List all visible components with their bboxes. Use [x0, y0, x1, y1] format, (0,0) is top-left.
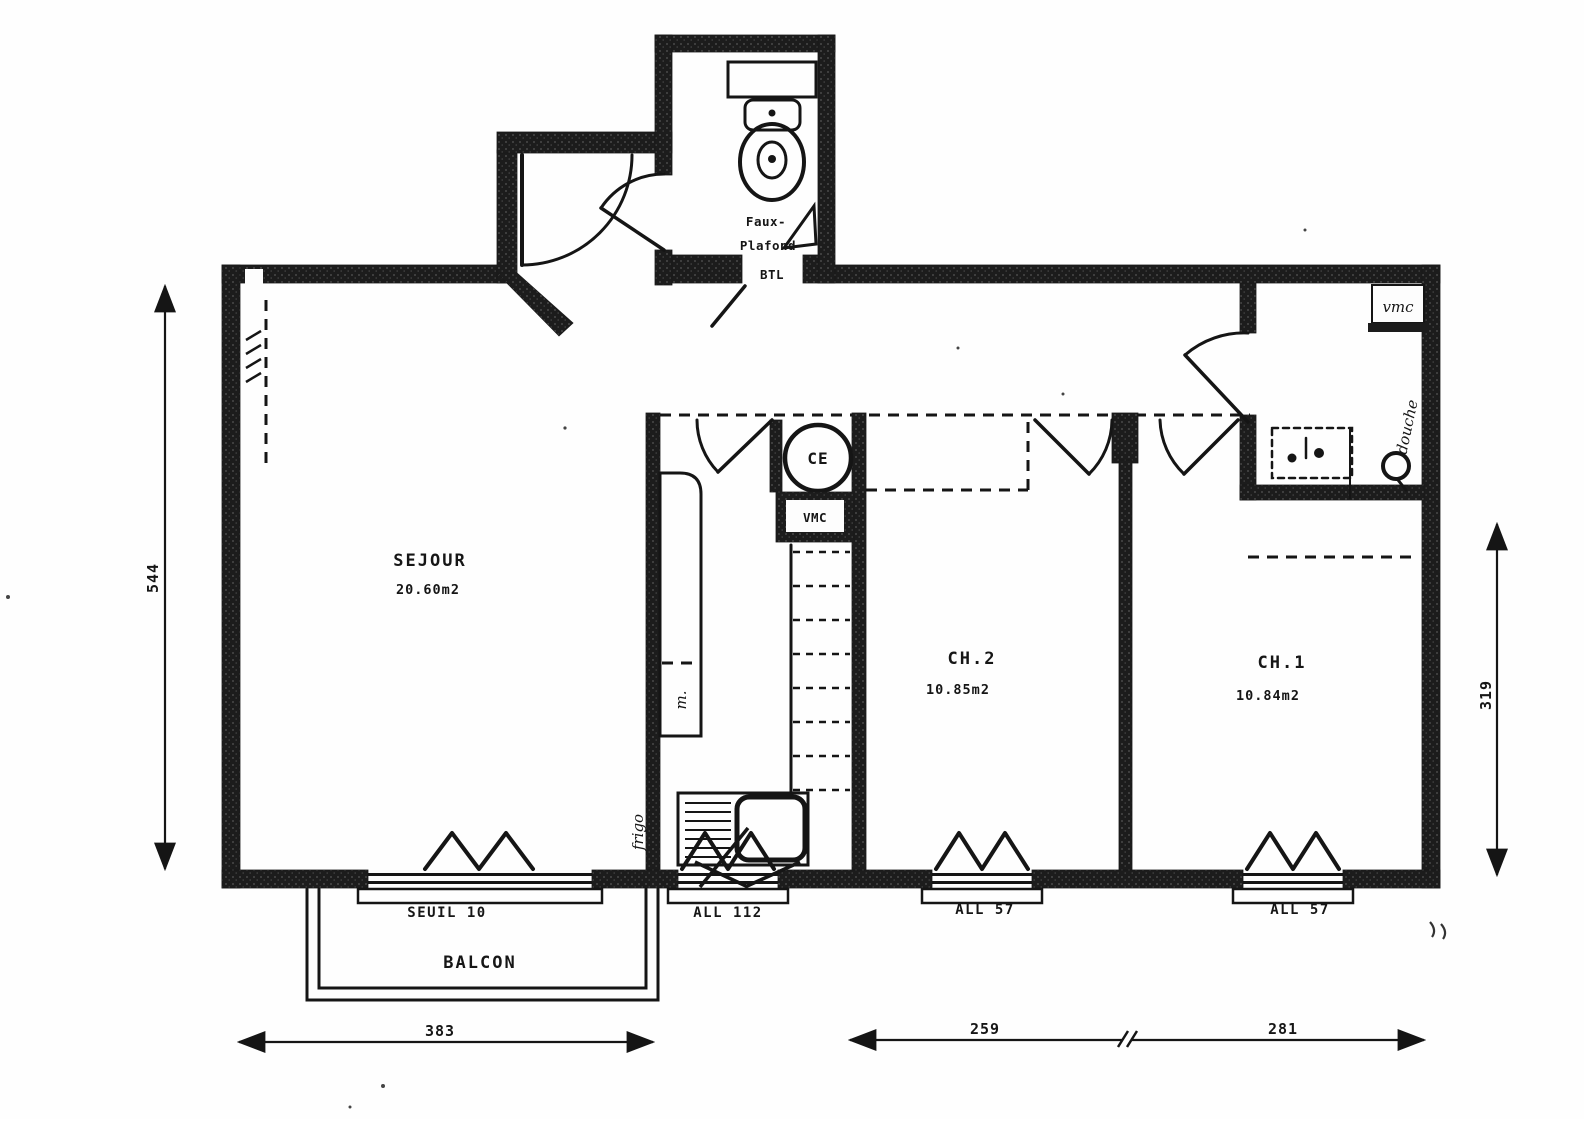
window-kitchen-label: ALL 112: [693, 905, 763, 921]
dim-bottom-ch2-value: 259: [970, 1020, 1000, 1038]
bath-vent-base: [1368, 323, 1428, 332]
wall-bottom-5: [1343, 870, 1440, 888]
dim-bottom-ch1-value: 281: [1268, 1020, 1298, 1038]
bath-vent-label: vmc: [1382, 298, 1414, 316]
wall-stub-ch2-ch1: [1112, 413, 1138, 463]
wc-door-leaf: [601, 208, 664, 250]
dim-right-value: 319: [1477, 680, 1495, 710]
sill-label: SEUIL 10: [407, 905, 486, 921]
ch2-door-arc: [1089, 420, 1112, 474]
ch2-door-leaf: [1035, 420, 1089, 474]
dim-left-value: 544: [144, 563, 162, 593]
wall-entry-splay: [497, 273, 573, 336]
fridge-note: frigo: [629, 814, 647, 851]
window-ch2-label: ALL 57: [955, 902, 1015, 918]
toilet-drain: [768, 155, 776, 163]
sejour-name: SEJOUR: [393, 551, 466, 571]
vanity-faucet-1: [1288, 454, 1297, 463]
wall-top-left: [222, 265, 515, 283]
toilet-button: [769, 110, 776, 117]
wc-wall-left-stub: [655, 250, 672, 285]
radiator-hatch: [246, 331, 261, 382]
toilet-cistern: [728, 62, 816, 97]
shower-drain: [1383, 453, 1409, 479]
btl-label: BTL: [760, 267, 784, 282]
wc-door-arc: [601, 174, 664, 208]
kitchen-door-leaf: [718, 420, 772, 472]
bath-vanity: [1272, 428, 1352, 478]
wc-wall-left-upper: [655, 35, 672, 175]
wall-kitchen-west: [646, 413, 660, 870]
sejour-area: 20.60m2: [396, 582, 460, 598]
ch2-name: CH.2: [948, 649, 997, 669]
btl-flap-line: [712, 286, 745, 326]
wc-wall-bottom-right: [803, 255, 818, 283]
window-ch2: [922, 833, 1042, 903]
shaft-shelves: [793, 552, 850, 790]
ch2-area: 10.85m2: [926, 682, 990, 698]
bedroom-labels: CH.2 10.85m2 CH.1 10.84m2: [926, 649, 1306, 704]
ch1-area: 10.84m2: [1236, 688, 1300, 704]
wall-bottom-3: [778, 870, 932, 888]
bath-door-arc: [1185, 333, 1248, 355]
wc-note-line2: Plafond: [740, 238, 796, 253]
bathroom: vmc douche: [1272, 285, 1428, 498]
kitchen: CE VMC m. frigo: [629, 425, 854, 887]
balcony-name: BALCON: [443, 953, 516, 973]
shower-note: douche: [1393, 398, 1422, 456]
wall-entry-step: [497, 150, 517, 283]
interior-walls: [646, 283, 1424, 870]
window-ch1-label: ALL 57: [1270, 902, 1330, 918]
wall-bottom-2: [592, 870, 678, 888]
wall-bottom-4: [1032, 870, 1243, 888]
ch1-name: CH.1: [1258, 653, 1307, 673]
wc-note-line1: Faux-: [746, 214, 786, 229]
wall-left: [222, 265, 240, 888]
vanity-faucet-2: [1314, 448, 1324, 458]
wall-bottom-1: [222, 870, 368, 888]
window-balcony-door: [358, 833, 602, 903]
window-kitchen: [668, 833, 788, 903]
wall-entry-top: [497, 132, 672, 153]
wc-wall-bottom-left: [672, 255, 742, 283]
wc-wall-top: [655, 35, 835, 52]
wall-top-right: [818, 265, 1440, 283]
wall-ch2-ch1: [1119, 460, 1132, 870]
kitchen-door-arc: [697, 420, 718, 472]
water-heater-label: CE: [807, 449, 828, 468]
floor-plan-drawing: Faux- Plafond BTL: [0, 0, 1584, 1119]
ch1-door-leaf: [1184, 420, 1238, 474]
sejour-room: SEJOUR 20.60m2: [246, 300, 467, 598]
wc-wall-right: [818, 35, 835, 283]
wall-right: [1422, 265, 1440, 888]
wall-bath-west-upper: [1240, 283, 1256, 333]
bath-door-leaf: [1185, 355, 1248, 422]
sink-drainboard: [685, 803, 731, 857]
dim-bottom-living-value: 383: [425, 1022, 455, 1040]
entry-door-arc: [522, 155, 632, 265]
window-ch1: [1233, 833, 1353, 903]
wall-notch: [245, 269, 263, 290]
wall-ce-niche: [770, 420, 782, 492]
pen-squiggle: [1430, 922, 1445, 939]
floor-plan-page: Faux- Plafond BTL: [0, 0, 1584, 1119]
wc-block: Faux- Plafond BTL: [601, 35, 835, 326]
ch1-door-arc: [1160, 420, 1184, 474]
wall-kitchen-east: [852, 413, 866, 870]
washer-mark: m.: [672, 691, 690, 710]
kitchen-vent-label: VMC: [803, 510, 827, 525]
wall-bath-south: [1240, 485, 1424, 500]
